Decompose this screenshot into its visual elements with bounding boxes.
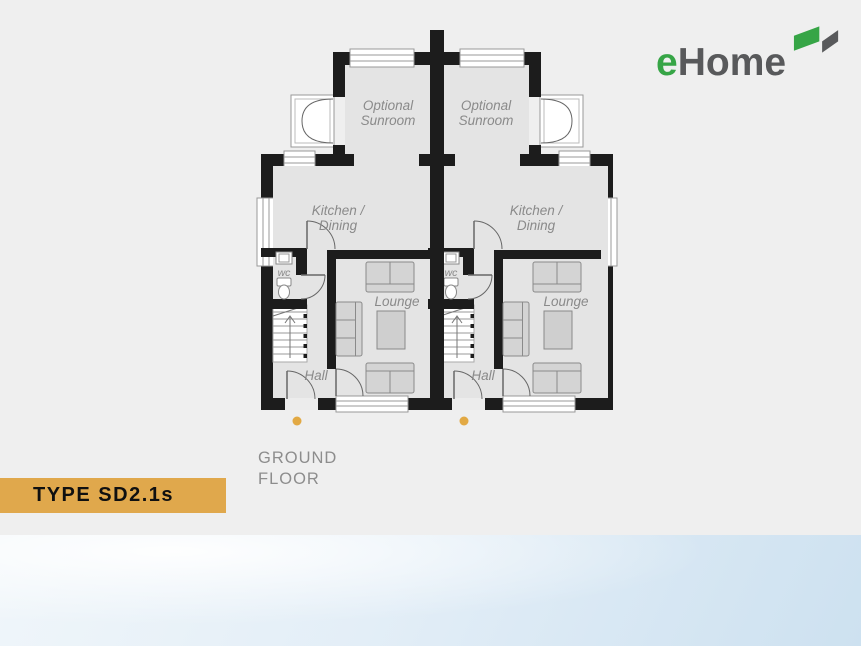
label-wc-right: wc bbox=[445, 267, 459, 279]
label-sunroom-right-2: Sunroom bbox=[459, 113, 514, 128]
type-badge: TYPE SD2.1s bbox=[0, 478, 226, 513]
label-kitchen-right-2: Dining bbox=[517, 218, 556, 233]
label-sunroom-left-1: Optional bbox=[363, 98, 414, 113]
floor-title: GROUND FLOOR bbox=[258, 448, 337, 490]
type-badge-label: TYPE SD2.1s bbox=[0, 478, 226, 513]
label-hall-right: Hall bbox=[471, 368, 495, 383]
ehome-e: e bbox=[656, 41, 678, 84]
party-wall bbox=[430, 30, 444, 410]
floor-title-line1: GROUND bbox=[258, 448, 337, 469]
label-wc-left: wc bbox=[278, 267, 292, 279]
open-book-icon bbox=[793, 25, 840, 54]
entrance-marker-left bbox=[293, 417, 302, 426]
label-lounge-left: Lounge bbox=[374, 294, 419, 309]
label-kitchen-left-2: Dining bbox=[319, 218, 358, 233]
label-lounge-right: Lounge bbox=[543, 294, 588, 309]
label-kitchen-right-1: Kitchen / bbox=[510, 203, 564, 218]
label-sunroom-left-2: Sunroom bbox=[361, 113, 416, 128]
label-kitchen-left-1: Kitchen / bbox=[312, 203, 366, 218]
ehome-home: Home bbox=[678, 41, 786, 84]
ehome-wordmark: eHome bbox=[656, 43, 786, 83]
flyer-page: eHome bbox=[0, 0, 861, 646]
entrance-marker-right bbox=[460, 417, 469, 426]
label-hall-left: Hall bbox=[304, 368, 328, 383]
floor-title-line2: FLOOR bbox=[258, 469, 337, 490]
label-sunroom-right-1: Optional bbox=[461, 98, 512, 113]
footer-banner: MILLMOUNT VILLAGE MILLMOUNT PHASE bbox=[0, 535, 861, 646]
floor-plan: Optional Sunroom Optional Sunroom Kitche… bbox=[248, 22, 628, 434]
ehome-logo: eHome bbox=[656, 24, 846, 86]
